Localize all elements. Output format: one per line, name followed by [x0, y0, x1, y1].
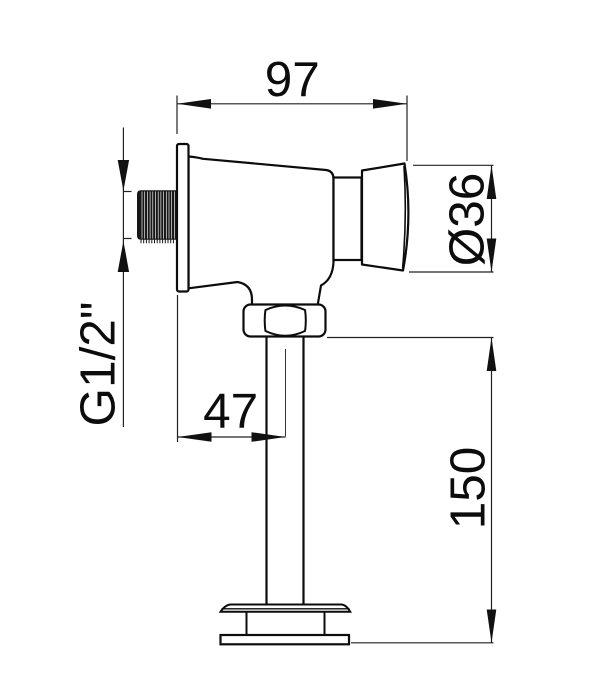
svg-text:Ø36: Ø36 [440, 173, 495, 267]
svg-text:47: 47 [203, 384, 258, 439]
svg-text:97: 97 [265, 52, 320, 107]
svg-text:G1/2": G1/2" [71, 302, 126, 427]
svg-text:150: 150 [441, 447, 496, 530]
